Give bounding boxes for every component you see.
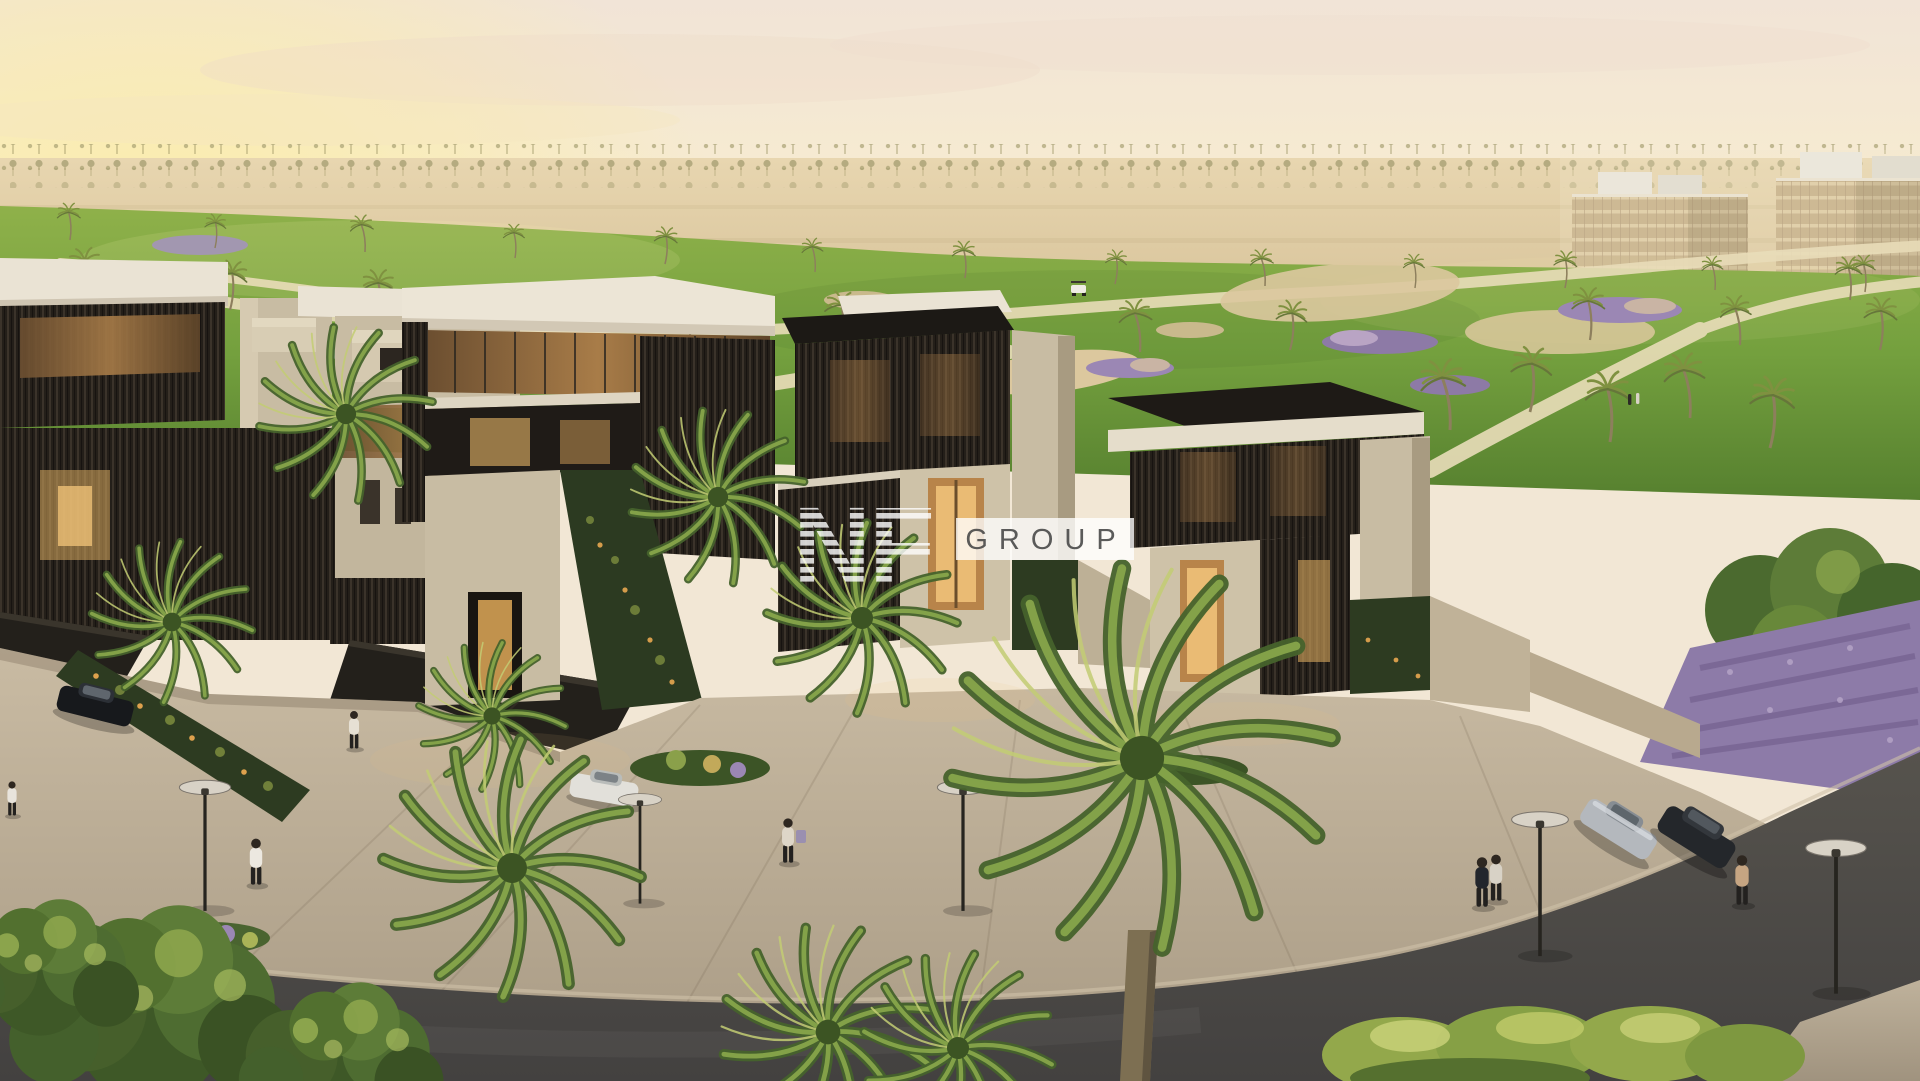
- planter: [630, 750, 770, 786]
- shopping-bag: [796, 830, 806, 843]
- boundary-wall: [1430, 596, 1530, 712]
- watermark-group-label: GROUP: [965, 524, 1126, 556]
- architectural-rendering: NF GROUP: [0, 0, 1920, 1081]
- watermark-nf: NF: [793, 484, 933, 605]
- scene-canvas: NF GROUP: [0, 0, 1920, 1081]
- hedge: [1350, 596, 1430, 694]
- cloud: [830, 15, 1870, 75]
